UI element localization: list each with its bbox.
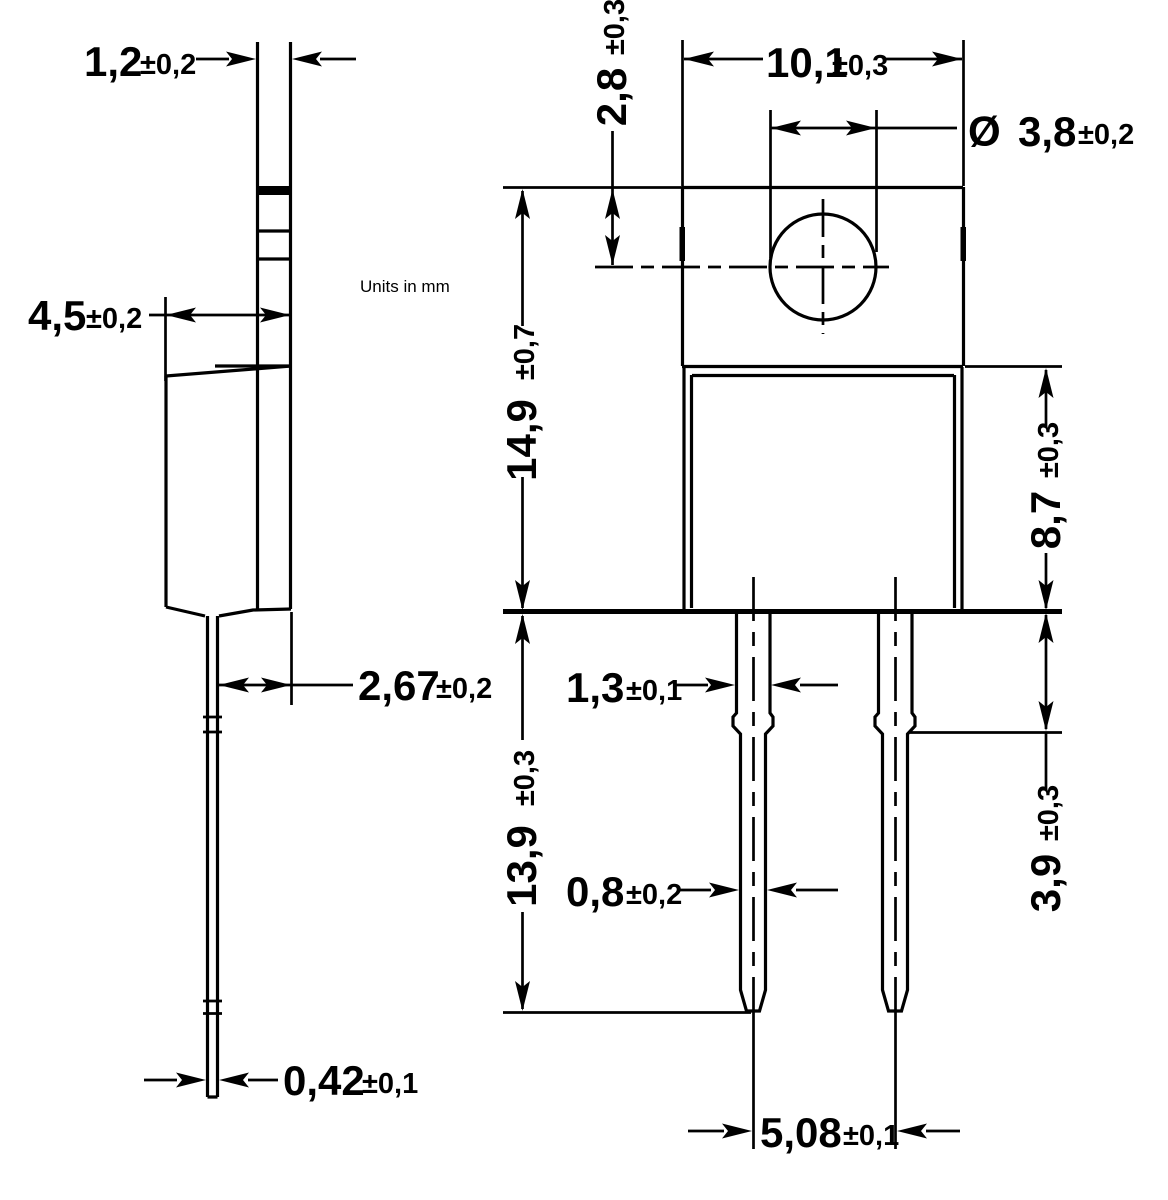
dim-lead-setback: 2,67 ±0,2: [219, 612, 492, 709]
dim-lead-shoulder-length: 3,9 ±0,3: [910, 613, 1069, 912]
dim-lead-width-upper-tolerance: ±0,1: [626, 675, 682, 707]
dim-lead-thickness-tolerance: ±0,1: [362, 1068, 418, 1100]
dim-body-below-tab: 8,7 ±0,3: [965, 367, 1069, 611]
body-inner-line: [692, 375, 955, 608]
dim-lead-length: 13,9 ±0,3: [498, 614, 751, 1013]
units-note: Units in mm: [360, 277, 450, 296]
dim-body-below-tab-value: 8,7: [1022, 491, 1069, 549]
dim-lead-pitch-tolerance: ±0,1: [843, 1120, 899, 1152]
dim-lead-length-tolerance: ±0,3: [509, 750, 541, 806]
dim-lead-setback-value: 2,67: [358, 662, 440, 709]
dim-hole-center-from-top-tolerance: ±0,3: [599, 0, 631, 55]
dim-tab-thickness: 1,2 ±0,2: [84, 38, 356, 85]
dim-lead-thickness: 0,42 ±0,1: [144, 1057, 418, 1104]
side-lead: [208, 616, 218, 1097]
diameter-symbol: Ø: [968, 108, 1001, 155]
side-lead-tip-mark: [203, 1001, 222, 1014]
tab-left-edge-mark: [680, 227, 686, 261]
dim-hole-center-from-top: 2,8 ±0,3: [588, 0, 635, 265]
dim-body-depth-tolerance: ±0,2: [86, 303, 142, 335]
dim-overall-body-height: 14,9 ±0,7: [498, 188, 682, 611]
dim-hole-diameter-tolerance: ±0,2: [1078, 119, 1134, 151]
dim-lead-pitch-value: 5,08: [760, 1109, 842, 1156]
dim-lead-width-lower-tolerance: ±0,2: [626, 879, 682, 911]
dim-body-width: 10,1 ±0,3: [683, 39, 964, 186]
dim-lead-shoulder-length-tolerance: ±0,3: [1033, 785, 1065, 841]
dim-overall-body-height-value: 14,9: [498, 399, 545, 481]
side-tab-dark-band: [256, 186, 292, 195]
side-body-bottom-edge: [166, 607, 205, 616]
dim-lead-setback-tolerance: ±0,2: [436, 673, 492, 705]
dim-lead-width-upper-value: 1,3: [566, 664, 624, 711]
dim-tab-thickness-value: 1,2: [84, 38, 142, 85]
dim-lead-shoulder-length-value: 3,9: [1022, 854, 1069, 912]
dim-lead-width-upper: 1,3 ±0,1: [566, 664, 838, 711]
side-lead-step-mark: [203, 717, 222, 732]
dim-hole-center-from-top-value: 2,8: [588, 68, 635, 126]
dim-overall-body-height-tolerance: ±0,7: [509, 324, 541, 380]
tab-right-edge-mark: [961, 227, 967, 261]
dim-lead-width-lower: 0,8 ±0,2: [566, 868, 838, 915]
dim-lead-pitch: 5,08 ±0,1: [688, 1016, 960, 1156]
dim-body-depth-value: 4,5: [28, 292, 86, 339]
package-dimension-drawing: 1,2 ±0,2 4,5 ±0,2 2,67 ±0,2 0,42 ±0,1 10…: [0, 0, 1168, 1200]
dim-hole-diameter-value: 3,8: [1018, 108, 1076, 155]
body-outline: [684, 367, 962, 611]
side-view: [166, 42, 292, 1097]
dim-hole-diameter: Ø 3,8 ±0,2: [771, 108, 1135, 258]
dim-lead-thickness-value: 0,42: [283, 1057, 365, 1104]
dim-lead-length-value: 13,9: [498, 825, 545, 907]
dim-tab-thickness-tolerance: ±0,2: [140, 49, 196, 81]
dim-lead-width-lower-value: 0,8: [566, 868, 624, 915]
dim-body-width-tolerance: ±0,3: [832, 50, 888, 82]
side-body-bottom-edge: [219, 609, 291, 616]
dim-body-below-tab-tolerance: ±0,3: [1033, 422, 1065, 478]
